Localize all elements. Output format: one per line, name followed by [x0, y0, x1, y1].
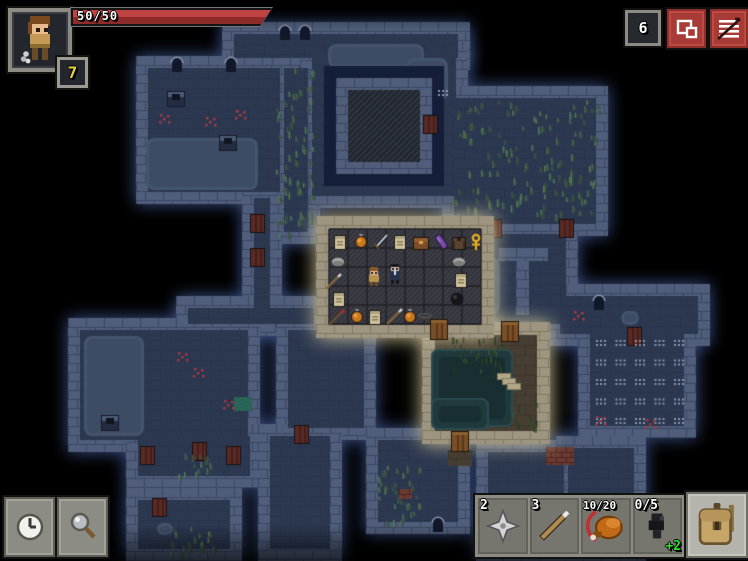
quickslot-1-count: 2 — [480, 498, 488, 513]
health-bar: 50/50 — [70, 7, 273, 27]
quickslot-2-javelin[interactable]: 3 — [530, 498, 580, 554]
hero-avatar-icon — [20, 14, 60, 66]
menu-button[interactable] — [710, 9, 748, 48]
depth-value: 6 — [638, 19, 647, 37]
documents-icon — [675, 17, 699, 41]
menu-lines-icon — [716, 17, 742, 41]
quickslot-3-food[interactable]: 10/20 — [581, 498, 631, 554]
dungeon-map[interactable] — [0, 0, 748, 561]
journal-button[interactable] — [667, 9, 706, 48]
clock-icon — [13, 510, 47, 544]
health-label: 50/50 — [77, 9, 118, 23]
search-button[interactable] — [57, 497, 108, 557]
quickslot-4-count: 0/5 — [635, 498, 658, 513]
level-badge: 7 — [57, 57, 88, 88]
javelin-icon — [536, 508, 572, 544]
level-value: 7 — [68, 63, 78, 82]
quickslot-3-count: 10/20 — [583, 498, 616, 513]
backpack-button[interactable] — [686, 492, 748, 558]
quickslot-2-count: 3 — [532, 498, 540, 513]
magnifier-icon — [65, 509, 101, 545]
quickslot-4-totem[interactable]: 0/5 +2 — [633, 498, 683, 554]
depth-button[interactable]: 6 — [625, 10, 661, 46]
quickslot-4-bonus: +2 — [665, 539, 681, 554]
quickslot-1-shuriken[interactable]: 2 — [478, 498, 528, 554]
shuriken-icon — [485, 508, 521, 544]
quickslot-bar: 2 3 10/20 0/5 +2 — [475, 495, 685, 557]
wait-button[interactable] — [4, 497, 55, 557]
backpack-icon — [695, 501, 739, 549]
